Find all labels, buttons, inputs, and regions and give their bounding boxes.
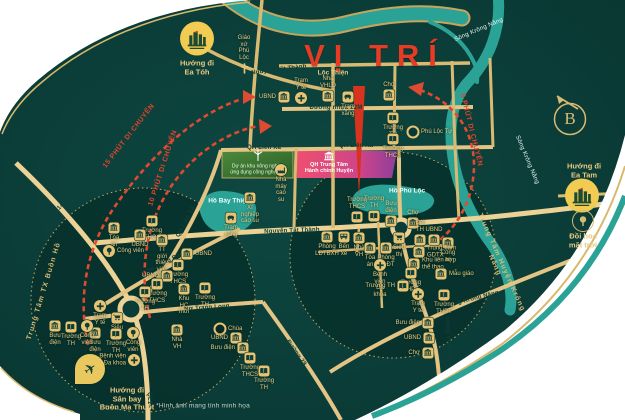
poi-label: Trường TH [106,341,126,354]
book-icon [388,134,399,145]
bank-icon [182,249,193,260]
travel-time-label: 5 PHÚT DI CHUYỂN [459,93,484,167]
poi-label: Nhà VH [171,337,182,350]
cross-icon [374,259,386,271]
book-icon [352,212,363,223]
bank-icon [245,193,256,204]
bank-icon [179,284,190,295]
bank-icon [429,235,440,246]
compass-north-letter: B [564,109,575,129]
lake-label: Hồ Phú Lộc [389,188,425,195]
poi-label: UBND [131,242,148,249]
poi-label: Bưu điện [396,320,420,327]
bank-icon [172,325,183,336]
cross-icon [94,300,106,312]
bank-icon [323,91,334,102]
book-icon [439,290,450,301]
book-icon [173,260,184,271]
book-icon [245,353,256,364]
poi-label: Bưu điện [211,345,235,352]
poi-label: Trường TH [365,283,395,290]
poi-label: UBND [425,227,442,234]
map-overlay: VỊ TRÍ Dự án khu nông nghiệp ứng dụng cô… [0,0,625,420]
bank-icon [279,92,290,103]
compass: B [545,93,595,143]
road-label: QH Liên Xã [175,206,196,239]
poi-label: Công viên [80,333,94,346]
tree-icon [103,245,115,257]
poi-label: Chợ [383,82,395,89]
book-icon [152,279,163,290]
poi-label: Giáo xứ Phú Lộc [238,35,251,61]
book-icon [398,281,409,292]
ring-icon [407,126,420,139]
sunflower-hill-icon [572,210,594,232]
poi-label: Phòng LĐTBXH [315,244,339,257]
poi-label: UBND [195,251,212,258]
poi-label: Bưu điện [49,333,60,346]
poi-label: Công viên [126,340,140,353]
cart-icon [394,233,405,244]
direction-label-doi-hoa: Đồi hoa mặt trời [569,233,597,250]
location-map: VỊ TRÍ Dự án khu nông nghiệp ứng dụng cô… [0,0,625,420]
river-label: Sông Krông Năng [514,135,540,185]
road-label: Đường 29 [285,339,307,367]
bank-icon [415,235,426,246]
book-icon [388,113,399,124]
poi-label: Chợ [407,210,419,217]
cross-icon [128,354,140,366]
poi-label: Siêu thị [393,245,405,258]
tree-icon [81,320,93,332]
town-center-label: Trung Tâm Huyện Krông Năng [466,203,530,325]
poi-label: Trạm Y tế [93,313,107,326]
river-label: Sông Krông Năng [454,17,504,43]
bus-icon [339,232,350,243]
direction-label-ea-tam: Hướng đi Ea Tam [567,163,601,180]
poi-label: Trường TH [254,378,274,391]
bank-icon [109,223,120,234]
poi-label: UBND [404,335,421,342]
bank-icon [386,216,397,227]
book-icon [147,216,158,227]
poi-label: Nhà máy cao su [275,177,286,203]
airport-pin-icon: ✈ [75,354,105,384]
poi-label: Chợ [408,350,420,357]
bank-icon [423,318,434,329]
bank-icon [354,233,365,244]
bank-icon [135,230,146,241]
bank-icon [162,271,173,282]
book-icon [259,366,270,377]
book-icon [66,322,77,333]
poi-label: UBND [259,94,276,101]
road-label: Nguyễn Tất Thành [491,204,547,214]
poi-label: Trường TH [364,196,384,209]
poi-label: Chùa [228,326,242,333]
bank-icon [365,243,376,254]
bank-icon [424,333,435,344]
poi-label: Bưu điện [385,201,396,214]
gas-icon [343,92,354,103]
poi-label: Mẫu giáo [449,271,474,278]
map-title: VỊ TRÍ [304,38,446,74]
book-icon [140,287,151,298]
disclaimer-text: *Hình ảnh mang tính minh họa [156,403,250,410]
cross-icon [295,92,307,104]
poi-label: Trường TH [195,295,215,308]
tree-icon [127,327,139,339]
poi-label: Phú Lộc Tự [421,129,452,136]
poi-label: Đài TH [415,220,424,233]
travel-time-label: 10 PHÚT DI CHUYỂN [147,129,178,207]
book-icon [111,329,122,340]
cart-icon [112,313,123,324]
bank-icon [322,232,333,243]
poi-label: Bến xe [339,244,350,257]
road-label: QL14 [50,202,65,218]
poi-label: UBND [211,335,228,342]
road-label: Nguyễn Tất Thành [251,64,307,77]
gas-icon [226,213,237,224]
bank-icon [436,269,447,280]
bank-icon [423,348,434,359]
poi-label: Khu HC mới [179,296,190,316]
bank-icon [157,235,168,246]
bank-icon [381,243,392,254]
poi-label: Trạm Y tế [294,78,308,91]
road-label: QH Liên Xã [339,143,373,149]
church-icon [238,62,250,74]
poi-label: Nhà VHLĐ [320,76,336,89]
poi-label: Trạm xăng [224,225,238,238]
poi-label: Trường TH [135,299,155,312]
poi-label: Trường TH [61,334,81,347]
poi-label: Xí nghiệp cao su [241,205,259,225]
road-label: Nguyễn Tất Thành [264,227,320,235]
poi-label: Trạm xăng [341,104,355,117]
book-icon [200,283,211,294]
poi-label: Trường THPT [434,302,454,315]
road-label: Hùng Vương [444,317,453,356]
book-icon [369,211,380,222]
project-logo-icon [180,21,215,61]
bank-icon [414,247,425,258]
ring-icon [214,323,227,336]
poi-label: Trạm Y tế [411,301,425,314]
travel-time-label: 15 PHÚT DI CHUYỂN [102,103,156,170]
poi-label: Trường THCS [383,146,403,159]
bank-icon [50,321,61,332]
direction-label-ea-toh: Hướng đi Ea Tóh [180,60,214,77]
poi-label: Nhà VH [353,245,364,258]
bank-icon [384,90,395,101]
poi-label: Trường THCS [240,365,260,378]
factory-icon [275,164,287,176]
admin-zone-label: QH Trung Tâm Hành chính Huyện [305,162,353,174]
plane-icon: ✈ [80,358,101,380]
poi-label: Công viên [117,248,144,255]
cross-icon [412,288,424,300]
book-icon [406,268,417,279]
direction-label-airport: Hướng đi Sân bay Buôn Ma Thuột [100,386,155,412]
